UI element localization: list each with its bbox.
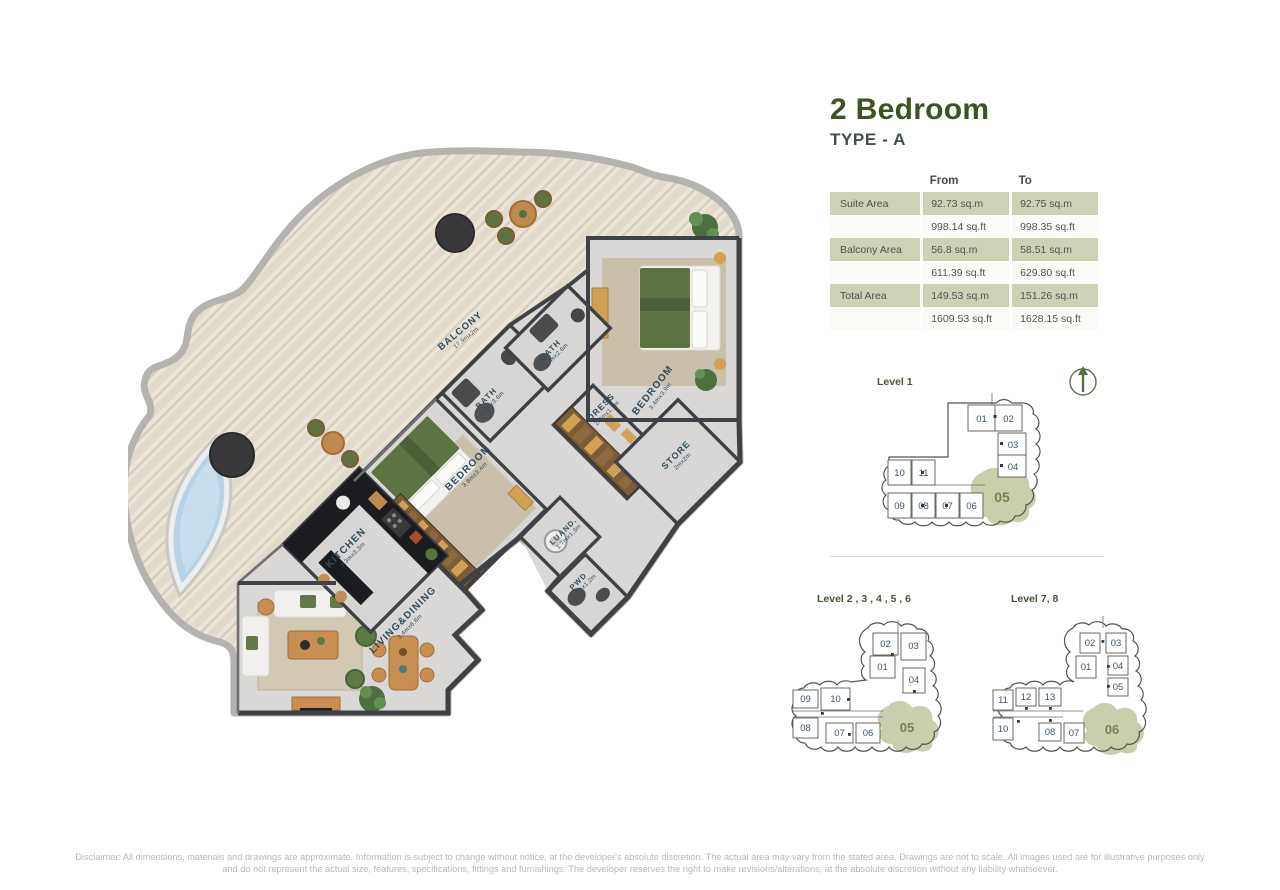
bedroom-a [592, 252, 726, 391]
col-header-from: From [922, 170, 1011, 192]
north-arrow-icon [1070, 366, 1096, 395]
unit-number: 07 [834, 728, 845, 739]
unit-number: 08 [800, 723, 811, 734]
keyplan-level23456-label: Level 2 , 3 , 4 , 5 , 6 [817, 593, 911, 605]
keyplan-level78-label: Level 7, 8 [1011, 593, 1058, 605]
keyplan-level1-label: Level 1 [877, 376, 913, 388]
table-row: 998.14 sq.ft 998.35 sq.ft [830, 215, 1098, 238]
highlighted-unit-number: 05 [900, 720, 914, 735]
unit-number: 03 [908, 641, 919, 652]
table-row: 1609.53 sq.ft 1628.15 sq.ft [830, 307, 1098, 330]
title-block: 2 Bedroom TYPE - A [830, 93, 989, 150]
unit-number: 04 [1008, 462, 1019, 473]
unit-number: 08 [1045, 727, 1056, 738]
unit-number: 09 [800, 694, 811, 705]
disclaimer-line-2: and do not represent the actual size, fe… [60, 864, 1220, 876]
unit-number: 10 [830, 694, 841, 705]
planter-icon [210, 433, 254, 477]
keyplan-level23456: Level 2 , 3 , 4 , 5 , 6 02 03 01 04 09 1… [788, 588, 983, 778]
table-header-row: From To [830, 170, 1098, 192]
keyplan-level78: Level 7, 8 02 03 01 04 05 11 12 13 10 08… [983, 588, 1178, 778]
unit-number: 04 [1113, 661, 1124, 672]
disclaimer-line-1: Disclaimer: All dimensions, materials an… [60, 852, 1220, 864]
floorplan-brochure-page: BALCONY 17.9mx2m BATH 1.7mx3.6m BATH 1.7… [0, 0, 1280, 890]
unit-number: 02 [1003, 414, 1014, 425]
unit-number: 01 [1081, 662, 1092, 673]
keyplan-level1: Level 1 01 02 03 04 10 11 09 08 07 06 05 [855, 365, 1110, 535]
highlighted-unit-number: 05 [994, 489, 1010, 505]
unit-number: 06 [863, 728, 874, 739]
unit-number: 03 [1111, 638, 1122, 649]
floorplan-drawing: BALCONY 17.9mx2m BATH 1.7mx3.6m BATH 1.7… [128, 138, 752, 790]
unit-number: 11 [998, 695, 1008, 706]
highlighted-unit-number: 06 [1105, 722, 1119, 737]
page-title: 2 Bedroom [830, 93, 989, 127]
unit-number: 06 [966, 501, 977, 512]
unit-number: 10 [894, 468, 905, 479]
table-row: 611.39 sq.ft 629.80 sq.ft [830, 261, 1098, 284]
col-header-to: To [1011, 170, 1098, 192]
unit-number: 01 [976, 414, 987, 425]
unit-number: 07 [1069, 728, 1080, 739]
section-divider [830, 556, 1104, 557]
unit-number: 13 [1045, 692, 1056, 703]
unit-number: 01 [877, 662, 888, 673]
unit-number: 12 [1021, 692, 1032, 703]
disclaimer: Disclaimer: All dimensions, materials an… [60, 852, 1220, 875]
area-table: From To Suite Area 92.73 sq.m 92.75 sq.m… [830, 170, 1098, 330]
unit-number: 02 [880, 639, 891, 650]
table-row: Balcony Area 56.8 sq.m 58.51 sq.m [830, 238, 1098, 261]
page-subtitle: TYPE - A [830, 130, 989, 150]
table-row: Total Area 149.53 sq.m 151.26 sq.m [830, 284, 1098, 307]
unit-number: 04 [909, 675, 920, 686]
unit-number: 09 [894, 501, 905, 512]
planter-icon [436, 214, 474, 252]
unit-number: 05 [1113, 682, 1124, 693]
table-row: Suite Area 92.73 sq.m 92.75 sq.m [830, 192, 1098, 215]
unit-number: 02 [1085, 638, 1096, 649]
unit-number: 03 [1008, 440, 1019, 451]
unit-number: 10 [998, 724, 1009, 735]
